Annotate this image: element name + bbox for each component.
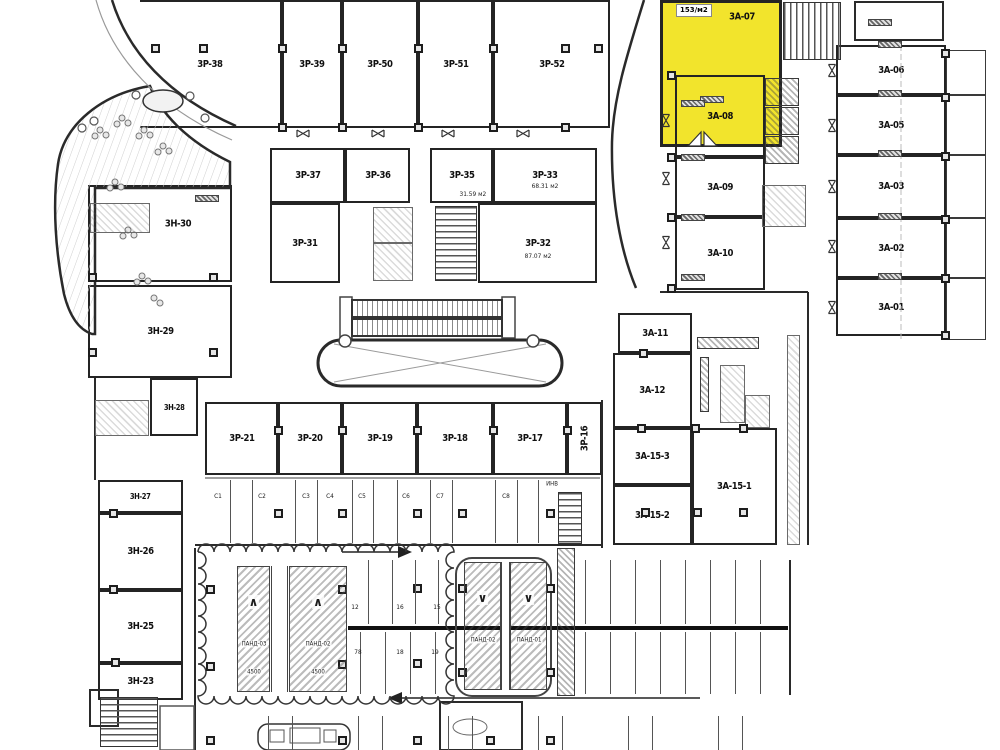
parking-stall-line [385, 632, 386, 694]
column-marker [209, 348, 218, 357]
column-marker [563, 426, 572, 435]
window-symbol [834, 64, 843, 78]
parking-stall-line [710, 560, 711, 624]
stairs [783, 2, 841, 60]
ramp-dimension: 4500 [246, 669, 262, 676]
wall-marker [681, 214, 705, 221]
shaft [95, 400, 149, 436]
parking-stall-line [397, 480, 398, 543]
shaft [762, 185, 806, 227]
ramp-divider [271, 566, 288, 692]
wall-marker [878, 150, 902, 157]
ramp-dimension: 4500 [310, 669, 326, 676]
parking-stall-line [410, 632, 411, 694]
window-symbol [371, 123, 385, 132]
column-marker [338, 44, 347, 53]
parking-stall-line [760, 560, 761, 624]
column-marker [88, 348, 97, 357]
column-marker [667, 284, 676, 293]
ramp-direction-arrow: ∧ [248, 595, 260, 609]
shaft [787, 335, 800, 545]
stall-label: C6 [401, 492, 411, 500]
column-marker [561, 44, 570, 53]
parking-stall-line [710, 632, 711, 694]
parking-stall-line [252, 480, 253, 543]
column-marker [546, 584, 555, 593]
balcony [946, 95, 986, 155]
ramp-direction-arrow: ∨ [523, 591, 535, 605]
column-marker [667, 153, 676, 162]
parking-stall-line [660, 560, 661, 624]
column-marker [546, 668, 555, 677]
wall-marker [195, 195, 219, 202]
column-marker [691, 424, 700, 433]
parking-stall-line [368, 560, 369, 624]
parking-stall-line [415, 560, 416, 624]
bay-number: 15 [432, 603, 441, 611]
column-marker [88, 273, 97, 282]
ramp-direction-arrow: ∧ [312, 595, 324, 609]
floor-plan: 3P-383P-393P-503P-513P-523A-073A-063A-05… [0, 0, 1000, 750]
shaft [697, 337, 759, 349]
parking-stall-line [635, 632, 636, 694]
bay-number: 19 [430, 648, 439, 656]
stall-label: C4 [325, 492, 335, 500]
column-marker [111, 658, 120, 667]
parking-stall-line [685, 632, 686, 694]
parking-stall-line [360, 632, 361, 694]
parking-stall-line [585, 560, 586, 624]
parking-stall-line [435, 632, 436, 694]
column-marker [941, 274, 950, 283]
parking-stall-line [585, 632, 586, 694]
parking-stall-line [430, 480, 431, 543]
parking-stall-line [610, 560, 611, 624]
shaft [90, 203, 150, 233]
stall-label: C7 [435, 492, 445, 500]
parking-stall-line [760, 632, 761, 694]
parking-stall-line [438, 560, 439, 624]
stairs [435, 206, 477, 281]
column-marker [561, 123, 570, 132]
bay-number: 18 [395, 648, 404, 656]
column-marker [941, 215, 950, 224]
column-marker [414, 44, 423, 53]
shaft [765, 107, 799, 135]
parking-stall-line [230, 480, 231, 543]
shaft [745, 395, 770, 428]
column-marker [739, 508, 748, 517]
window-symbol [834, 180, 843, 194]
column-marker [206, 585, 215, 594]
stairs [558, 492, 582, 544]
stall-label: C5 [357, 492, 367, 500]
ramp-direction-arrow: ∨ [477, 591, 489, 605]
wall-marker [681, 274, 705, 281]
column-marker [413, 426, 422, 435]
column-marker [199, 44, 208, 53]
decoration-layer: 153/м2∧ПАНД-034500∧ПАНД-024500∨ПАНД-02∨П… [0, 0, 1000, 750]
balcony [946, 218, 986, 278]
stall-label: C3 [301, 492, 311, 500]
ramp-label: ПАНД-02 [305, 641, 332, 648]
bay-number: 12 [350, 603, 359, 611]
parking-stall-line [392, 560, 393, 624]
parking-stall-line [382, 716, 383, 750]
parking-stall-line [538, 716, 539, 750]
column-marker [278, 44, 287, 53]
parking-stall-line [685, 560, 686, 624]
parking-stall-line [292, 716, 293, 750]
window-symbol [834, 301, 843, 315]
column-marker [413, 659, 422, 668]
column-marker [338, 123, 347, 132]
parking-stall-line [472, 716, 473, 750]
parking-stall-line [268, 716, 269, 750]
wall-marker [681, 154, 705, 161]
column-marker [489, 44, 498, 53]
parking-stall-line [452, 480, 453, 543]
column-marker [941, 331, 950, 340]
parking-stall-line [352, 480, 353, 543]
parking-ramp [510, 562, 547, 690]
column-marker [278, 123, 287, 132]
shaft [765, 78, 799, 106]
parking-ramp [464, 562, 501, 690]
window-symbol [668, 114, 677, 128]
shaft [373, 207, 413, 243]
column-marker [338, 509, 347, 518]
parking-stall-line [628, 716, 629, 750]
column-marker [546, 509, 555, 518]
column-marker [667, 71, 676, 80]
stall-label: C1 [213, 492, 223, 500]
parking-stall-line [358, 716, 359, 750]
column-marker [594, 44, 603, 53]
parking-stall-line [635, 560, 636, 624]
parking-stall-line [562, 716, 563, 750]
column-marker [486, 736, 495, 745]
column-marker [489, 426, 498, 435]
wall-marker [868, 19, 892, 26]
column-marker [667, 213, 676, 222]
wall-marker [878, 213, 902, 220]
column-marker [413, 509, 422, 518]
column-marker [641, 508, 650, 517]
column-marker [941, 93, 950, 102]
column-marker [338, 736, 347, 745]
parking-stall-line [652, 716, 653, 750]
shaft [557, 548, 575, 696]
parking-stall-line [517, 480, 518, 543]
column-marker [739, 424, 748, 433]
parking-stall-line [735, 560, 736, 624]
shaft [373, 243, 413, 281]
window-symbol [834, 240, 843, 254]
parking-stall-line [735, 632, 736, 694]
column-marker [206, 662, 215, 671]
window-symbol [834, 119, 843, 133]
window-symbol [668, 172, 677, 186]
parking-stall-line [610, 632, 611, 694]
window-symbol [668, 236, 677, 250]
parking-stall-line [317, 480, 318, 543]
parking-stall-line [495, 480, 496, 543]
parking-stall-line [742, 716, 743, 750]
window-symbol [296, 123, 310, 132]
window-symbol [516, 123, 530, 132]
area-chip: 153/м2 [676, 4, 712, 17]
column-marker [274, 509, 283, 518]
column-marker [151, 44, 160, 53]
wall-marker [878, 41, 902, 48]
parking-stall-line [295, 480, 296, 543]
column-marker [693, 508, 702, 517]
column-marker [546, 736, 555, 745]
column-marker [414, 123, 423, 132]
column-marker [338, 426, 347, 435]
window-symbol [441, 123, 455, 132]
parking-stall-line [373, 480, 374, 543]
column-marker [941, 49, 950, 58]
stall-label: C2 [257, 492, 267, 500]
ramp-label: ПАНД-02 [469, 637, 496, 644]
column-marker [413, 736, 422, 745]
balcony [946, 50, 986, 95]
balcony [946, 278, 986, 340]
column-marker [458, 509, 467, 518]
ramp-divider [501, 562, 510, 690]
bay-number: 78 [353, 648, 362, 656]
shaft [720, 365, 745, 423]
parking-stall-line [660, 632, 661, 694]
wall-marker [878, 90, 902, 97]
bay-number: 16 [395, 603, 404, 611]
disabled-parking-label: ИНВ [545, 481, 559, 488]
wall-marker [681, 100, 705, 107]
column-marker [639, 349, 648, 358]
column-marker [109, 585, 118, 594]
shaft [765, 136, 799, 164]
column-marker [489, 123, 498, 132]
wall-marker [878, 273, 902, 280]
column-marker [941, 152, 950, 161]
column-marker [637, 424, 646, 433]
shaft [700, 357, 709, 412]
ramp-label: ПАНД-01 [515, 637, 542, 644]
column-marker [274, 426, 283, 435]
column-marker [109, 509, 118, 518]
stall-label: C8 [501, 492, 511, 500]
column-marker [209, 273, 218, 282]
ramp-label: ПАНД-03 [240, 641, 267, 648]
balcony [946, 155, 986, 218]
parking-stall-line [718, 716, 719, 750]
parking-stall-line [538, 480, 539, 543]
column-marker [206, 736, 215, 745]
stairs [100, 697, 158, 747]
parking-stall-line [448, 716, 449, 750]
